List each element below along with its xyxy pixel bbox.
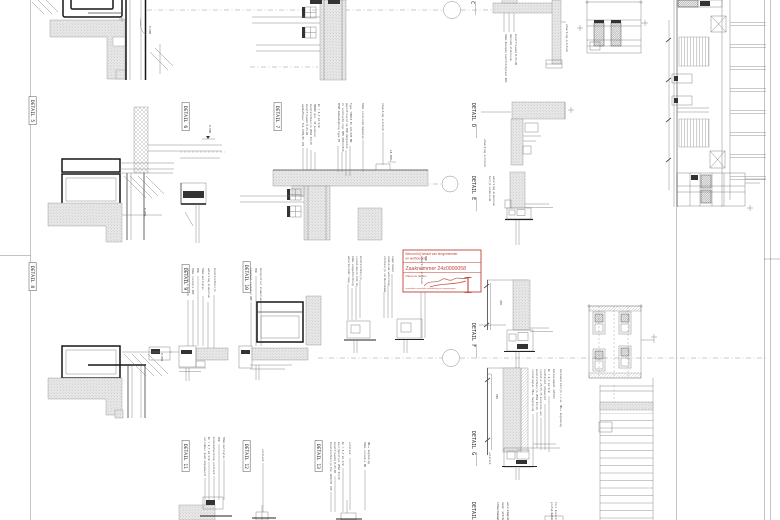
detail-label: DETAIL 10 [243, 265, 249, 290]
approval-stamp: Behoort bij besluit van burgemeester en … [403, 250, 481, 293]
annotation-text: HWDBO min. 30 minuten [313, 104, 317, 137]
grid-lines [147, 2, 768, 367]
detail-d-drawing [481, 102, 574, 165]
detail-label: DETAIL D [470, 103, 476, 127]
annotation-text: bestaand kozijn i.v.m. HR++ beglazing [559, 369, 563, 427]
annotation-text: 50mm isolatie MW [363, 442, 367, 467]
annotation-text: 50mm isolatie ABP [191, 268, 195, 295]
annotation-text: steenwol isolatie ABP [249, 268, 253, 301]
detail-label: DETAIL 5 [29, 100, 35, 122]
annotation-text: Rc = 4,7 m2 K/W [341, 442, 345, 466]
plan-top-small [585, 0, 648, 53]
stamp-salutation: Namens dezen, [406, 274, 428, 278]
drawing-sheet: Behoort bij besluit van burgemeester en … [0, 0, 780, 520]
level-marker: 0.050- [160, 353, 164, 363]
level-marker: 0.000 [148, 26, 152, 34]
level-marker: 0.000 [208, 125, 212, 133]
annotation-text: uitstuck [488, 452, 492, 465]
annotation-text: nader uit te werken [501, 502, 505, 520]
annotation-text: 2x verkleefd vlgs NEN 6063/2019 [341, 103, 345, 152]
annotation-text: afwerking uitstuck [186, 268, 190, 297]
detail-label: DETAIL 11 [182, 444, 188, 469]
plan-mid-right [587, 304, 657, 520]
detail-label: DETAIL 8 [29, 266, 35, 288]
annotation-text: uitstuck [261, 449, 265, 462]
annotation-text: wandafbouw: Fuk 1000/05 100 [301, 104, 305, 147]
annotation-text: stelkozijn verduurzaamd [383, 256, 387, 292]
annotation-text: 20mm Resopan kunststofplaat ABS [504, 34, 508, 83]
detail-f-drawing [479, 280, 553, 373]
annotation-text: kunststofkozijn [213, 268, 217, 292]
level-marker: 18.500+ [389, 150, 393, 162]
detail-5-drawing [48, 159, 174, 242]
annotation-text: 50mm multiplex [222, 437, 226, 459]
detail-7-drawing [240, 132, 428, 240]
annotation-text: prefab betonband [550, 502, 554, 520]
annotation-text: PUR [217, 437, 221, 442]
annotation-text: aluminium waterslag [387, 256, 391, 286]
detail-e-drawing [505, 172, 553, 245]
annotation-text: Rc = 4,7 m2 K/W [207, 437, 211, 461]
annotation-text: kunststofkozijn VEKA 82/20 [535, 369, 539, 410]
dimension-text: 200 [499, 300, 503, 305]
annotation-text: kozijn aluminium [488, 176, 492, 201]
annotation-text: waterkerende laag [347, 256, 351, 283]
detail-label: DETAIL 12 [243, 444, 249, 469]
annotation-text: type 'HERTA PS 125/180 MW' [349, 103, 353, 144]
level-marker: 0.050- [143, 208, 147, 218]
annotation-text: Rc = 4,7 m2 K/W [317, 104, 321, 128]
annotation-text: 10mm voegafdichting [351, 256, 355, 286]
detail-label: DETAIL 6 [182, 106, 188, 128]
annotation-text: Torx bevestiging [554, 502, 558, 520]
detail-label: DETAIL C [469, 0, 475, 4]
grid-bubble-e [442, 176, 458, 192]
annotation-text: kozijnprofiel VEKA 82/20 [337, 442, 341, 480]
detail-label: DETAIL E [470, 176, 476, 200]
annotation-text: luchtdicht afgewerkt [543, 369, 547, 401]
annotation-text: afwerking uitstuck [381, 103, 385, 132]
annotation-text: afwerking uitstuck [565, 24, 569, 53]
annotation-text: PUR [254, 268, 258, 273]
annotation-text: waterslag aluminium [207, 268, 211, 298]
stamp-case-number: Zaaknummer 24z0000058 [406, 266, 467, 272]
annotation-text: PUR [424, 256, 428, 261]
detail-label: DETAIL H [470, 502, 476, 520]
annotation-text: isolatiekern U=0,16 [355, 256, 359, 286]
annotation-text: HR++ beglazing [367, 442, 371, 464]
dimension-text: 200 [495, 394, 499, 399]
annotation-text: kunststofkozijn VEKA 82/20 [309, 104, 313, 145]
annotation-text: 50mm isolerend dakbeton [361, 103, 365, 139]
insulation-strip [134, 107, 222, 173]
annotation-text: binnenafwerking uitstuck [212, 437, 216, 475]
annotation-text: 50mm multiplex [201, 268, 205, 290]
annotation-text: afwerking uitstuck [420, 256, 424, 285]
annotation-text: EPDM dakbedekking type FB [337, 103, 341, 142]
annotation-text: geprofileerd op PUR dakplaten [345, 103, 349, 149]
annotation-text: betonelement aGF162 [552, 369, 556, 399]
annotation-text: PUR [196, 268, 200, 273]
annotation-text: isolatie 75/15-75 minerale wol [539, 369, 543, 416]
annotation-text: waterslag aluminium [492, 176, 496, 206]
annotation-text: knelprofiel aluminium [259, 268, 263, 301]
stamp-footer: teamleider ruimtelijke ontwikkeling en v… [406, 287, 457, 290]
annotation-text: kunstfilwand B-03-DO [333, 442, 337, 474]
grid-bubble-f [443, 350, 460, 367]
stamp-line1: Behoort bij besluit van burgemeester [406, 252, 459, 256]
annotation-text: compriband [391, 256, 395, 272]
annotation-text: afwerking uitstuck [483, 139, 487, 168]
detail-label: DETAIL 13 [315, 444, 321, 469]
detail-label: DETAIL G [470, 431, 476, 455]
annotation-text: celrubber band afgesmeerd [203, 437, 207, 476]
annotation-text: kunstfilwand B-03-DO [305, 104, 309, 136]
annotation-text: kunstfilwand B-03-DO [514, 34, 518, 66]
annotation-text: uitstuck [348, 442, 352, 455]
detail-label: DETAIL F [470, 323, 476, 347]
grid-bubble-c [444, 2, 461, 19]
detail-label: DETAIL 7 [274, 106, 280, 128]
annotation-text: waterslag aluminium [506, 502, 510, 520]
annotation-text: Rc = 4,7 m2 K/W [547, 369, 551, 393]
annotation-text: kunststofkozijn Fuk 1000/05 100 [329, 442, 333, 491]
annotation-text: isolatieglas HR++ beglazing [531, 369, 535, 412]
detail-8-drawing [48, 346, 179, 418]
annotation-text: kunststofkozijn [359, 256, 363, 280]
detail-top-left-drawing [32, 0, 173, 80]
detail-6-drawing [180, 136, 225, 243]
detail-drawing-canvas: Behoort bij besluit van burgemeester en … [0, 0, 780, 520]
annotation-text: dakrand aluminium [509, 34, 513, 61]
top-middle-wall-section [250, 0, 346, 80]
plan-right-strip [666, 0, 766, 211]
annotation-text: 100mm kanaalplaatvloer [496, 502, 500, 520]
